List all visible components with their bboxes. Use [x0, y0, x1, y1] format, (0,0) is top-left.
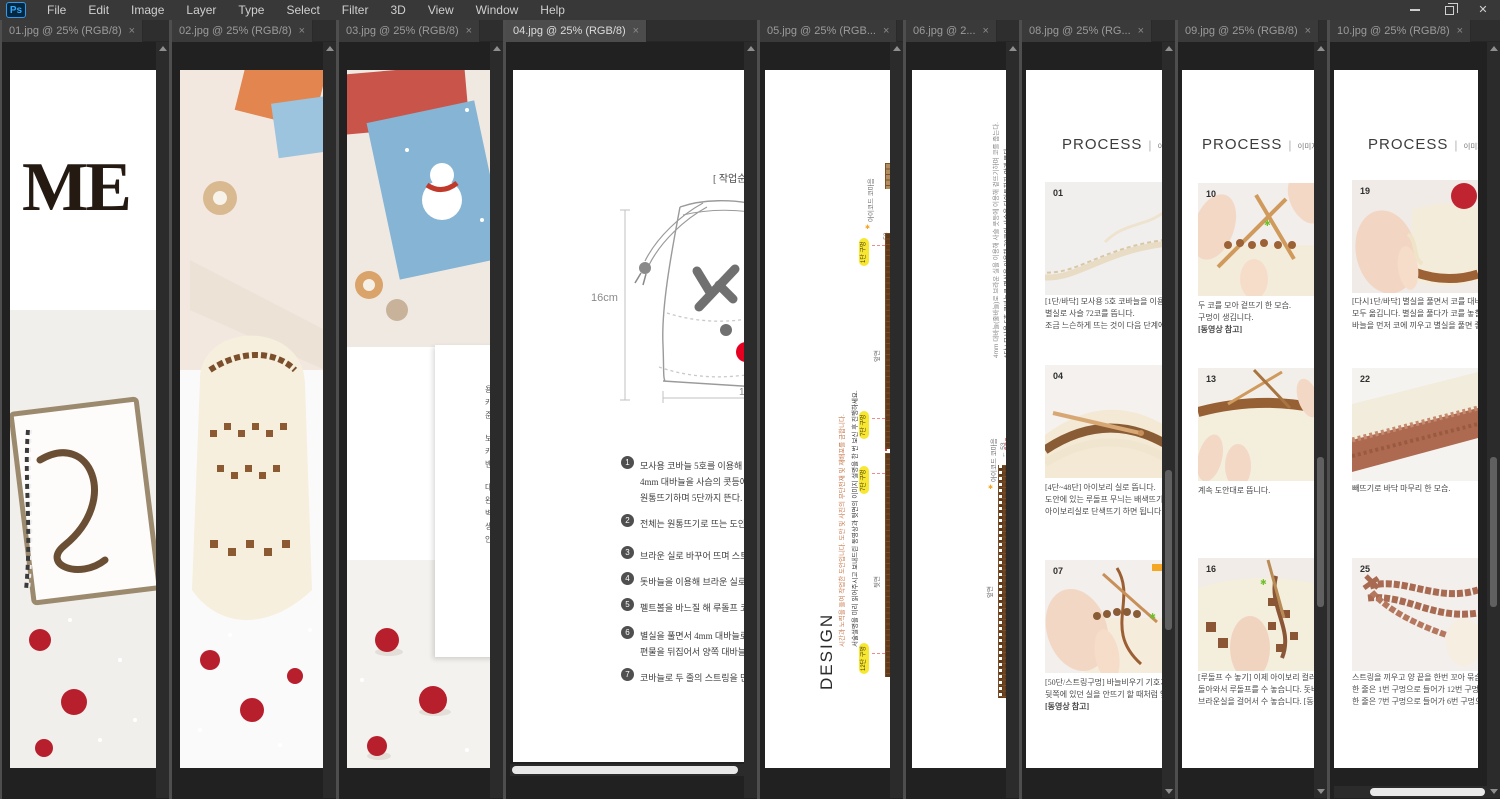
- tab-label: 05.jpg @ 25% (RGB...: [767, 25, 876, 37]
- heading-divider: |: [1288, 138, 1291, 152]
- green-star-icon: ✱: [1149, 612, 1156, 621]
- hole-callout: 7단 구멍: [859, 466, 869, 494]
- menu-select[interactable]: Select: [275, 0, 330, 20]
- icord-label: 아이코드 코마음: [865, 178, 875, 222]
- caption-line: 뒷쪽에 있던 실을 안뜨기 할 때처럼 앞: [1045, 689, 1164, 701]
- icord-label: 아이코드 코마음: [988, 438, 998, 482]
- hole-callout: 7단 구멍: [859, 411, 869, 439]
- tab-04jpg[interactable]: 04.jpg @ 25% (RGB/8) ×: [506, 20, 647, 42]
- document-03: 용 카드 준비 보기 카드 밴드 대비 완성 벽에 생활 안드: [347, 70, 492, 768]
- restore-icon: [1445, 6, 1454, 15]
- step-number-badge: 3: [621, 546, 634, 559]
- green-star-icon: ✱: [1264, 219, 1271, 228]
- vertical-scrollbar[interactable]: [1487, 42, 1500, 798]
- green-star-icon: ✱: [1260, 578, 1267, 587]
- tab-close-icon[interactable]: ×: [883, 25, 889, 37]
- scroll-thumb[interactable]: [1317, 457, 1324, 607]
- minimize-button[interactable]: [1398, 0, 1432, 20]
- menu-edit[interactable]: Edit: [77, 0, 120, 20]
- photoshop-window: Ps File Edit Image Layer Type Select Fil…: [0, 0, 1500, 799]
- star-icon: ✱: [988, 484, 993, 491]
- tab-02jpg[interactable]: 02.jpg @ 25% (RGB/8) ×: [172, 20, 313, 42]
- photo-number: 10: [1206, 189, 1216, 199]
- horizontal-scroll-thumb[interactable]: [512, 766, 738, 774]
- process-heading: PROCESS: [1062, 136, 1142, 153]
- vertical-scrollbar[interactable]: [490, 42, 503, 798]
- step-number-badge: 7: [621, 668, 634, 681]
- caption-line: 빼뜨기로 바닥 마무리 한 모습.: [1352, 483, 1450, 495]
- pane-02jpg: 02.jpg @ 25% (RGB/8) ×: [172, 20, 339, 799]
- photo-number: 22: [1360, 374, 1370, 384]
- caption-line: 아이보리실로 단색뜨기 하면 됩니다.: [1045, 506, 1164, 518]
- tab-strip-04: 04.jpg @ 25% (RGB/8) ×: [506, 20, 757, 42]
- pouch-diagram: 16cm: [553, 185, 748, 420]
- vertical-scrollbar[interactable]: [1006, 42, 1019, 798]
- caption-line: [1단/바닥] 모사용 5호 코바늘을 이용해: [1045, 296, 1164, 308]
- pane-05jpg: 05.jpg @ 25% (RGB... × 아이코드 코마음 ✱ ← 53 1…: [760, 20, 906, 799]
- canvas-02: [172, 42, 336, 798]
- photo-art: [1045, 365, 1164, 478]
- caption-line: 한 줄은 7번 구멍으로 들어가 6번 구멍으로 나옵: [1352, 696, 1478, 708]
- document-06: 1단 | 모사용 5호 코바늘로 별실을 이용해 72코의 사슬을 타이트하지 …: [912, 70, 1012, 768]
- tab-strip-05: 05.jpg @ 25% (RGB... ×: [760, 20, 903, 42]
- menu-file[interactable]: File: [36, 0, 77, 20]
- tab-strip-08: 08.jpg @ 25% (RG... ×: [1022, 20, 1175, 42]
- tab-label: 02.jpg @ 25% (RGB/8): [179, 25, 292, 37]
- menu-image[interactable]: Image: [120, 0, 175, 20]
- photo-number: 25: [1360, 564, 1370, 574]
- window-controls: ✕: [1398, 0, 1500, 20]
- tab-close-icon[interactable]: ×: [633, 25, 639, 37]
- step-item: 5 펠트볼을 바느질 해 루돌프 코를 완성한: [621, 600, 748, 616]
- tab-close-icon[interactable]: ×: [129, 25, 135, 37]
- vertical-scrollbar[interactable]: [890, 42, 903, 798]
- vertical-scrollbar[interactable]: [1162, 42, 1175, 798]
- tab-strip-09: 09.jpg @ 25% (RGB/8) ×: [1178, 20, 1327, 42]
- menu-layer[interactable]: Layer: [175, 0, 227, 20]
- process-photo-22: 22: [1352, 368, 1478, 481]
- callout-line: [872, 418, 885, 419]
- document-08: PROCESS | 이미지 과 01 [1단: [1026, 70, 1164, 768]
- document-10: PROCESS | 이미지 과정설명 19: [1334, 70, 1478, 768]
- callout-line: [872, 653, 885, 654]
- pane-06jpg: 06.jpg @ 2... × 1단 | 모사용 5호 코바늘로 별실을 이용해…: [906, 20, 1022, 799]
- page-title: ME: [22, 148, 129, 228]
- pane-09jpg: 09.jpg @ 25% (RGB/8) × PROCESS | 이미지 과정설…: [1178, 20, 1330, 799]
- scroll-up-icon[interactable]: [1317, 46, 1325, 51]
- tab-label: 09.jpg @ 25% (RGB/8): [1185, 25, 1298, 37]
- vertical-scrollbar[interactable]: [1314, 42, 1327, 798]
- tab-close-icon[interactable]: ×: [1138, 25, 1144, 37]
- photo-number: 16: [1206, 564, 1216, 574]
- caption-line: 스트링을 끼우고 양 끝을 한번 꼬아 묶습니다.: [1352, 672, 1478, 684]
- scroll-up-icon[interactable]: [159, 46, 167, 51]
- note-text-warning: 시간과 노력을 들여 작업한 도안입니다. 도안 및 사진의 무단전재 및 재배…: [836, 414, 846, 647]
- scroll-up-icon[interactable]: [326, 46, 334, 51]
- caption-line: 별실로 사슬 72코를 뜹니다.: [1045, 308, 1164, 320]
- scroll-up-icon[interactable]: [893, 46, 901, 51]
- tab-label: 06.jpg @ 2...: [913, 25, 976, 37]
- caption-line: [루돌프 수 놓기] 이제 아이보리 컬러 구간으로: [1198, 672, 1316, 684]
- step-number-badge: 6: [621, 626, 634, 639]
- step-number-badge: 5: [621, 598, 634, 611]
- back-label: 뒷면: [871, 576, 881, 588]
- page-inset-card: 용 카드 준비 보기 카드 밴드 대비 완성 벽에 생활 안드: [435, 345, 492, 657]
- scroll-thumb[interactable]: [1165, 470, 1172, 630]
- photo-art: [1198, 183, 1316, 296]
- caption-line: [50단/스트링구멍] 바늘비우기 기호가: [1045, 677, 1164, 689]
- horizontal-scrollbar[interactable]: [510, 764, 744, 776]
- row2-instruction: 4mm 대바늘(줄바늘)로 브라운 실을 이용해 사슬 콧등에 이용해 겉뜨기하…: [990, 122, 1000, 358]
- tab-01jpg[interactable]: 01.jpg @ 25% (RGB/8) ×: [2, 20, 143, 42]
- canvas-05: 아이코드 코마음 ✱ ← 53 1단 구멍 7단 구멍 7단 구멍 12단 구멍…: [760, 42, 903, 798]
- step-text: 모사용 코바늘 5호를 이용해 별실로 사슬: [640, 458, 748, 474]
- process-heading: PROCESS: [1202, 136, 1282, 153]
- process-photo-16: 16 ✱: [1198, 558, 1316, 671]
- step-item: 3 브라운 실로 바꾸어 뜨며 스트링 구멍을: [621, 548, 748, 564]
- vertical-scrollbar[interactable]: [744, 42, 757, 798]
- scroll-up-icon[interactable]: [493, 46, 501, 51]
- step-number-badge: 2: [621, 514, 634, 527]
- process-photo-01: 01: [1045, 182, 1164, 295]
- tab-strip-10: 10.jpg @ 25% (RGB/8) ×: [1330, 20, 1500, 42]
- canvas-04: [ 작업순서 ] 16cm: [506, 42, 757, 798]
- step-text: 코바늘로 두 줄의 스트링을 만들어 끼우: [640, 670, 748, 686]
- canvas-06: 1단 | 모사용 5호 코바늘로 별실을 이용해 72코의 사슬을 타이트하지 …: [906, 42, 1019, 798]
- scroll-up-icon[interactable]: [747, 46, 755, 51]
- document-09: PROCESS | 이미지 과정설명 10 ✱: [1182, 70, 1316, 768]
- photo-art: [1045, 560, 1164, 673]
- horizontal-scroll-thumb[interactable]: [1370, 788, 1485, 796]
- design-title: DESIGN: [817, 613, 837, 690]
- scroll-down-icon[interactable]: [1165, 789, 1173, 794]
- photo-art: [1045, 182, 1164, 295]
- step-text: 돗바늘을 이용해 브라운 실로 루돌프 무늬: [640, 574, 748, 590]
- step-text: 브라운 실로 바꾸어 뜨며 스트링 구멍을: [640, 548, 748, 564]
- caption-line: [동영상 참고]: [1045, 701, 1164, 713]
- pane-08jpg: 08.jpg @ 25% (RG... × PROCESS | 이미지 과 01: [1022, 20, 1178, 799]
- caption-line: 구멍이 생깁니다.: [1198, 312, 1291, 324]
- tab-03jpg[interactable]: 03.jpg @ 25% (RGB/8) ×: [339, 20, 480, 42]
- step-text: 4mm 대바늘을 사슴의 콧등에 넣어 겉뜨: [640, 474, 748, 490]
- photo-number: 19: [1360, 186, 1370, 196]
- caption-line: 브라운실을 걸어서 수 놓습니다. [동영상 참고]: [1198, 696, 1316, 708]
- tab-close-icon[interactable]: ×: [466, 25, 472, 37]
- process-photo-10: 10 ✱: [1198, 183, 1316, 296]
- horizontal-scrollbar[interactable]: [1334, 786, 1487, 798]
- chart-dash-column: [999, 465, 1002, 698]
- vertical-scrollbar[interactable]: [156, 42, 169, 798]
- photo-number: 13: [1206, 374, 1216, 384]
- tab-strip-03: 03.jpg @ 25% (RGB/8) ×: [339, 20, 503, 42]
- scroll-up-icon[interactable]: [1165, 46, 1173, 51]
- callout-line: [872, 245, 885, 246]
- tab-label: 03.jpg @ 25% (RGB/8): [346, 25, 459, 37]
- pane-04jpg: 04.jpg @ 25% (RGB/8) × [ 작업순서 ] 16cm: [506, 20, 760, 799]
- tab-label: 10.jpg @ 25% (RGB/8): [1337, 25, 1450, 37]
- tab-close-icon[interactable]: ×: [983, 25, 989, 37]
- minimize-icon: [1410, 9, 1420, 11]
- caption-line: 조금 느슨하게 뜨는 것이 다음 단계에서: [1045, 320, 1164, 332]
- pane-01jpg: 01.jpg @ 25% (RGB/8) × ME: [0, 20, 172, 799]
- process-photo-07: 07 ✱: [1045, 560, 1164, 673]
- note-text: 서술설명을 미리 읽어주시고 보내드린 동영상과 뒷면의 이미지 설명을 한 번…: [849, 390, 859, 647]
- star-icon: ✱: [865, 224, 870, 231]
- front-label: 앞면: [871, 350, 881, 362]
- photo-art: [1198, 558, 1316, 671]
- front-label: 앞면: [984, 586, 994, 598]
- tab-close-icon[interactable]: ×: [1305, 25, 1311, 37]
- step-item: 4 돗바늘을 이용해 브라운 실로 루돌프 무늬: [621, 574, 748, 590]
- menu-help[interactable]: Help: [529, 0, 576, 20]
- tab-05jpg[interactable]: 05.jpg @ 25% (RGB... ×: [760, 20, 897, 42]
- scroll-down-icon[interactable]: [1317, 789, 1325, 794]
- process-photo-19: 19: [1352, 180, 1478, 293]
- step-text: 편물을 뒤집어서 양쪽 대바늘에서 한코: [640, 644, 748, 660]
- step-item: 1 모사용 코바늘 5호를 이용해 별실로 사슬 4mm 대바늘을 사슴의 콧등…: [621, 458, 748, 506]
- step-text: 펠트볼을 바느질 해 루돌프 코를 완성한: [640, 600, 748, 616]
- section-header: [ 작업순서 ]: [713, 170, 748, 185]
- step-item: 7 코바늘로 두 줄의 스트링을 만들어 끼우: [621, 670, 748, 686]
- step-number-badge: 1: [621, 456, 634, 469]
- caption-line: [다시1단/바닥] 별실을 풀면서 코를 대바늘로: [1352, 296, 1478, 308]
- pane-10jpg: 10.jpg @ 25% (RGB/8) × PROCESS | 이미지 과정설…: [1330, 20, 1500, 799]
- tab-08jpg[interactable]: 08.jpg @ 25% (RG... ×: [1022, 20, 1152, 42]
- menu-window[interactable]: Window: [465, 0, 530, 20]
- restore-button[interactable]: [1432, 0, 1466, 20]
- tab-close-icon[interactable]: ×: [1457, 25, 1463, 37]
- caption-line: 한 줄은 1번 구멍으로 들어가 12번 구멍으로 나: [1352, 684, 1478, 696]
- menu-view[interactable]: View: [417, 0, 465, 20]
- callout-line: [872, 473, 885, 474]
- heading-divider: |: [1454, 138, 1457, 152]
- document-panes: 01.jpg @ 25% (RGB/8) × ME: [0, 20, 1500, 799]
- caption-line: 계속 도안대로 뜹니다.: [1198, 485, 1270, 497]
- tab-label: 04.jpg @ 25% (RGB/8): [513, 25, 626, 37]
- hole-callout: 1단 구멍: [859, 238, 869, 266]
- close-icon: ✕: [1478, 5, 1487, 16]
- photo-cover-scene: [10, 310, 160, 768]
- photoshop-logo-icon[interactable]: Ps: [6, 2, 26, 18]
- scroll-up-icon[interactable]: [1490, 46, 1498, 51]
- pane-03jpg: 03.jpg @ 25% (RGB/8) ×: [339, 20, 506, 799]
- tab-close-icon[interactable]: ×: [299, 25, 305, 37]
- caption-line: 바늘을 먼저 코에 끼우고 별실을 풀면 좋습니다.: [1352, 320, 1478, 332]
- photo-art: [1352, 368, 1478, 481]
- canvas-10: PROCESS | 이미지 과정설명 19: [1330, 42, 1500, 798]
- step-item: 2 전체는 원통뜨기로 뜨는 도안이며 아이보: [621, 516, 748, 532]
- caption-line: [4단~48단] 아이보리 실로 뜹니다.: [1045, 482, 1164, 494]
- tab-strip-01: 01.jpg @ 25% (RGB/8) ×: [2, 20, 169, 42]
- photo-pouch-scene: [180, 70, 325, 768]
- tab-label: 08.jpg @ 25% (RG...: [1029, 25, 1131, 37]
- menu-type[interactable]: Type: [227, 0, 275, 20]
- menu-3d[interactable]: 3D: [379, 0, 416, 20]
- document-04: [ 작업순서 ] 16cm: [513, 70, 748, 762]
- process-photo-04: 04: [1045, 365, 1164, 478]
- process-heading: PROCESS: [1368, 136, 1448, 153]
- document-02: [180, 70, 325, 768]
- tab-strip-06: 06.jpg @ 2... ×: [906, 20, 1019, 42]
- caption-line: 모두 옮깁니다. 별실을 풀다가 코를 놓칠 수 있으: [1352, 308, 1478, 320]
- vertical-scrollbar[interactable]: [323, 42, 336, 798]
- scroll-thumb[interactable]: [1490, 457, 1497, 607]
- caption-line: 도안에 있는 루돌프 무늬는 배색뜨기로: [1045, 494, 1164, 506]
- process-subheading: 이미지 과정설명: [1463, 141, 1478, 152]
- svg-text:16cm: 16cm: [591, 292, 618, 304]
- scroll-up-icon[interactable]: [1009, 46, 1017, 51]
- document-01: ME: [10, 70, 160, 768]
- photo-art: [1352, 180, 1478, 293]
- step-item: 6 별실을 풀면서 4mm 대바늘로 코를 옮기고 편물을 뒤집어서 양쪽 대바…: [621, 628, 748, 660]
- canvas-01: ME: [2, 42, 169, 798]
- caption-line: 두 코를 모아 겉뜨기 한 모습.: [1198, 300, 1291, 312]
- step-text: 원통뜨기하며 5단까지 뜬다.: [640, 490, 748, 506]
- photo-art: [1352, 558, 1478, 671]
- tab-06jpg[interactable]: 06.jpg @ 2... ×: [906, 20, 997, 42]
- caption-line: 돌아와서 루돌프를 수 놓습니다. 돗바늘에: [1198, 684, 1316, 696]
- step-number-badge: 4: [621, 572, 634, 585]
- process-photo-25: 25: [1352, 558, 1478, 671]
- menu-bar: Ps File Edit Image Layer Type Select Fil…: [0, 0, 1500, 20]
- canvas-08: PROCESS | 이미지 과 01 [1단: [1022, 42, 1175, 798]
- process-photo-13: 13: [1198, 368, 1316, 481]
- close-button[interactable]: ✕: [1466, 0, 1500, 20]
- canvas-09: PROCESS | 이미지 과정설명 10 ✱: [1178, 42, 1327, 798]
- photo-number: 04: [1053, 371, 1063, 381]
- tab-09jpg[interactable]: 09.jpg @ 25% (RGB/8) ×: [1178, 20, 1319, 42]
- photo-art: [1198, 368, 1316, 481]
- tab-10jpg[interactable]: 10.jpg @ 25% (RGB/8) ×: [1330, 20, 1471, 42]
- photo-books-scene: [347, 70, 492, 347]
- document-05: 아이코드 코마음 ✱ ← 53 1단 구멍 7단 구멍 7단 구멍 12단 구멍…: [765, 70, 900, 768]
- hole-callout: 12단 구멍: [859, 643, 869, 674]
- step-text: 별실을 풀면서 4mm 대바늘로 코를 옮기고: [640, 628, 748, 644]
- menu-filter[interactable]: Filter: [331, 0, 380, 20]
- scroll-down-icon[interactable]: [1490, 789, 1498, 794]
- tab-strip-02: 02.jpg @ 25% (RGB/8) ×: [172, 20, 336, 42]
- heading-divider: |: [1148, 138, 1151, 152]
- photo-number: 07: [1053, 566, 1063, 576]
- tab-label: 01.jpg @ 25% (RGB/8): [9, 25, 122, 37]
- photo-number: 01: [1053, 188, 1063, 198]
- step-text: 전체는 원통뜨기로 뜨는 도안이며 아이보: [640, 516, 748, 532]
- caption-line: [동영상 참고]: [1198, 324, 1291, 336]
- canvas-03: 용 카드 준비 보기 카드 밴드 대비 완성 벽에 생활 안드: [339, 42, 503, 798]
